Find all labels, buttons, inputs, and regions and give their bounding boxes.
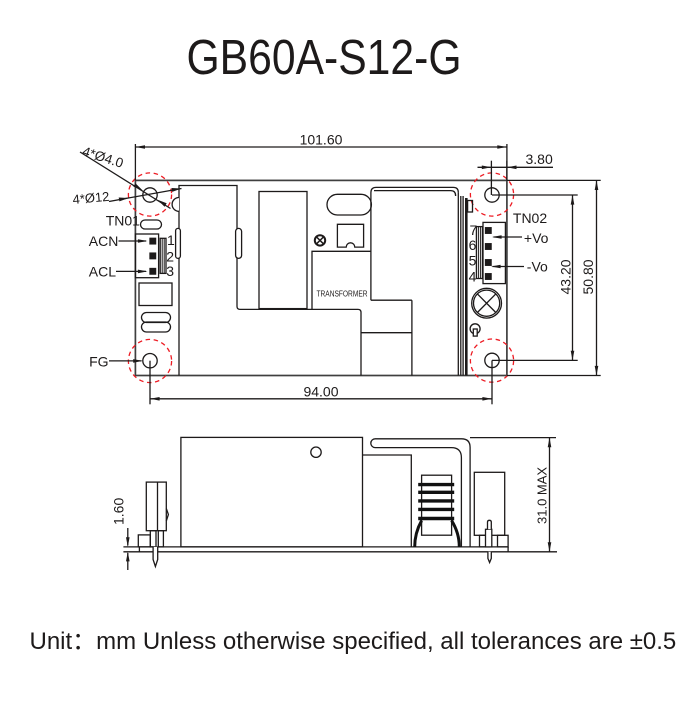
svg-text:101.60: 101.60 — [300, 132, 343, 148]
svg-text:Unit：mm Unless otherwise speci: Unit：mm Unless otherwise specified, all … — [30, 628, 677, 655]
svg-text:ACN: ACN — [89, 233, 119, 249]
svg-text:6: 6 — [469, 237, 477, 253]
svg-text:FG: FG — [89, 354, 108, 370]
svg-text:2: 2 — [166, 248, 174, 264]
svg-text:1.60: 1.60 — [111, 498, 127, 525]
svg-text:43.20: 43.20 — [558, 259, 574, 294]
svg-text:GB60A-S12-G: GB60A-S12-G — [187, 30, 462, 85]
svg-text:50.80: 50.80 — [580, 259, 596, 294]
svg-text:TRANSFORMER: TRANSFORMER — [317, 288, 368, 298]
svg-text:ACL: ACL — [89, 264, 116, 280]
svg-text:+Vo: +Vo — [524, 230, 549, 246]
svg-text:-Vo: -Vo — [527, 258, 548, 274]
svg-text:94.00: 94.00 — [303, 384, 338, 400]
svg-text:3.80: 3.80 — [526, 151, 553, 167]
svg-text:31.0 MAX: 31.0 MAX — [535, 467, 550, 524]
svg-text:TN01: TN01 — [106, 213, 140, 229]
svg-text:7: 7 — [470, 222, 478, 238]
svg-text:TN02: TN02 — [513, 210, 547, 226]
svg-text:4: 4 — [469, 269, 477, 285]
svg-text:3: 3 — [166, 263, 174, 279]
svg-text:4*Ø12: 4*Ø12 — [72, 189, 110, 207]
svg-text:5: 5 — [469, 253, 477, 269]
svg-text:1: 1 — [167, 232, 175, 248]
